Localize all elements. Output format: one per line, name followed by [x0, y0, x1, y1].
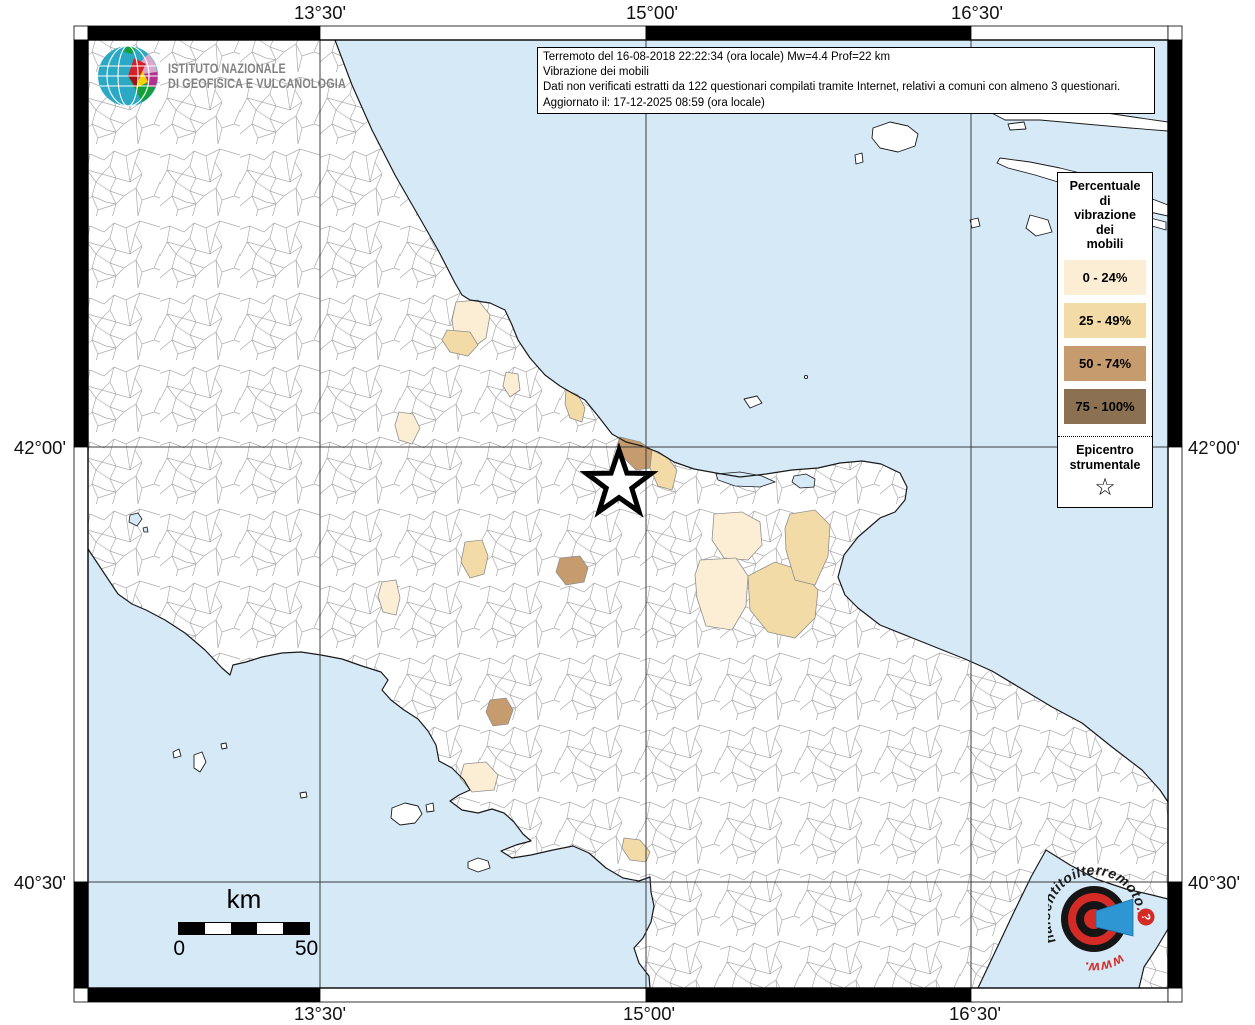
- legend-swatch-label: 25 - 49%: [1079, 313, 1131, 328]
- scale-bar: km 0 50: [178, 884, 310, 961]
- lon-label-top-1330: 13°30': [294, 2, 346, 24]
- legend-title: Percentuale di vibrazione dei mobili: [1058, 173, 1152, 252]
- map-page: 13°30' 15°00' 16°30' 13°30' 15°00' 16°30…: [0, 0, 1255, 1024]
- hsit-text-www: www.: [1082, 952, 1127, 976]
- star-icon: ☆: [1058, 473, 1152, 507]
- lon-label-bottom-1500: 15°00': [623, 1003, 675, 1025]
- event-title: Terremoto del 16-08-2018 22:22:34 (ora l…: [543, 50, 1149, 65]
- scale-segment: [283, 923, 309, 934]
- legend-title-line: Percentuale: [1058, 179, 1152, 194]
- ingv-logo-line2: DI GEOFISICA E VULCANOLOGIA: [168, 76, 346, 91]
- lon-label-top-1630: 16°30': [951, 2, 1003, 24]
- lat-label-right-4200: 42°00': [1188, 437, 1240, 459]
- legend-divider: [1058, 436, 1152, 437]
- event-info-box: Terremoto del 16-08-2018 22:22:34 (ora l…: [537, 47, 1155, 114]
- scale-segment: [179, 923, 205, 934]
- legend: Percentuale di vibrazione dei mobili 0 -…: [1057, 172, 1153, 508]
- scale-unit: km: [178, 884, 310, 915]
- legend-title-line: di: [1058, 194, 1152, 209]
- hsit-watermark-logo: ? haisentitoilterremoto.it www.: [1048, 843, 1218, 995]
- legend-swatch-25-49: 25 - 49%: [1064, 303, 1146, 338]
- lat-label-left-4030: 40°30': [0, 872, 66, 894]
- epicenter-legend-label: Epicentro strumentale: [1058, 443, 1152, 473]
- scale-max: 50: [295, 937, 318, 961]
- update-timestamp: Aggiornato il: 17-12-2025 08:59 (ora loc…: [543, 96, 1149, 111]
- ingv-logo-line1: ISTITUTO NAZIONALE: [168, 61, 346, 76]
- hsit-www-text: www.: [1082, 952, 1127, 976]
- legend-swatch-0-24: 0 - 24%: [1064, 260, 1146, 295]
- scale-segment: [257, 923, 283, 934]
- scale-segment: [205, 923, 231, 934]
- lat-label-left-4200: 42°00': [0, 437, 66, 459]
- lon-label-bottom-1330: 13°30': [294, 1003, 346, 1025]
- scale-numbers: 0 50: [178, 937, 310, 961]
- legend-swatch-label: 0 - 24%: [1083, 270, 1128, 285]
- legend-title-line: dei: [1058, 223, 1152, 238]
- legend-swatch-label: 50 - 74%: [1079, 356, 1131, 371]
- legend-title-line: mobili: [1058, 237, 1152, 252]
- ingv-logo: ISTITUTO NAZIONALE DI GEOFISICA E VULCAN…: [96, 44, 390, 108]
- legend-swatch-75-100: 75 - 100%: [1064, 389, 1146, 424]
- epicenter-legend-line: strumentale: [1058, 458, 1152, 473]
- legend-swatch-50-74: 50 - 74%: [1064, 346, 1146, 381]
- scale-segment: [231, 923, 257, 934]
- legend-title-line: vibrazione: [1058, 208, 1152, 223]
- legend-swatch-label: 75 - 100%: [1075, 399, 1134, 414]
- lon-label-bottom-1630: 16°30': [949, 1003, 1001, 1025]
- map-canvas: [88, 40, 1168, 988]
- ingv-logo-text: ISTITUTO NAZIONALE DI GEOFISICA E VULCAN…: [168, 61, 346, 91]
- scale-min: 0: [173, 937, 185, 961]
- map-subject: Vibrazione dei mobili: [543, 65, 1149, 80]
- epicenter-legend-line: Epicentro: [1058, 443, 1152, 458]
- lon-label-top-1500: 15°00': [626, 2, 678, 24]
- scale-bar-graphic: [178, 922, 310, 935]
- data-disclaimer: Dati non verificati estratti da 122 ques…: [543, 80, 1149, 95]
- ingv-globe-icon: [96, 44, 160, 108]
